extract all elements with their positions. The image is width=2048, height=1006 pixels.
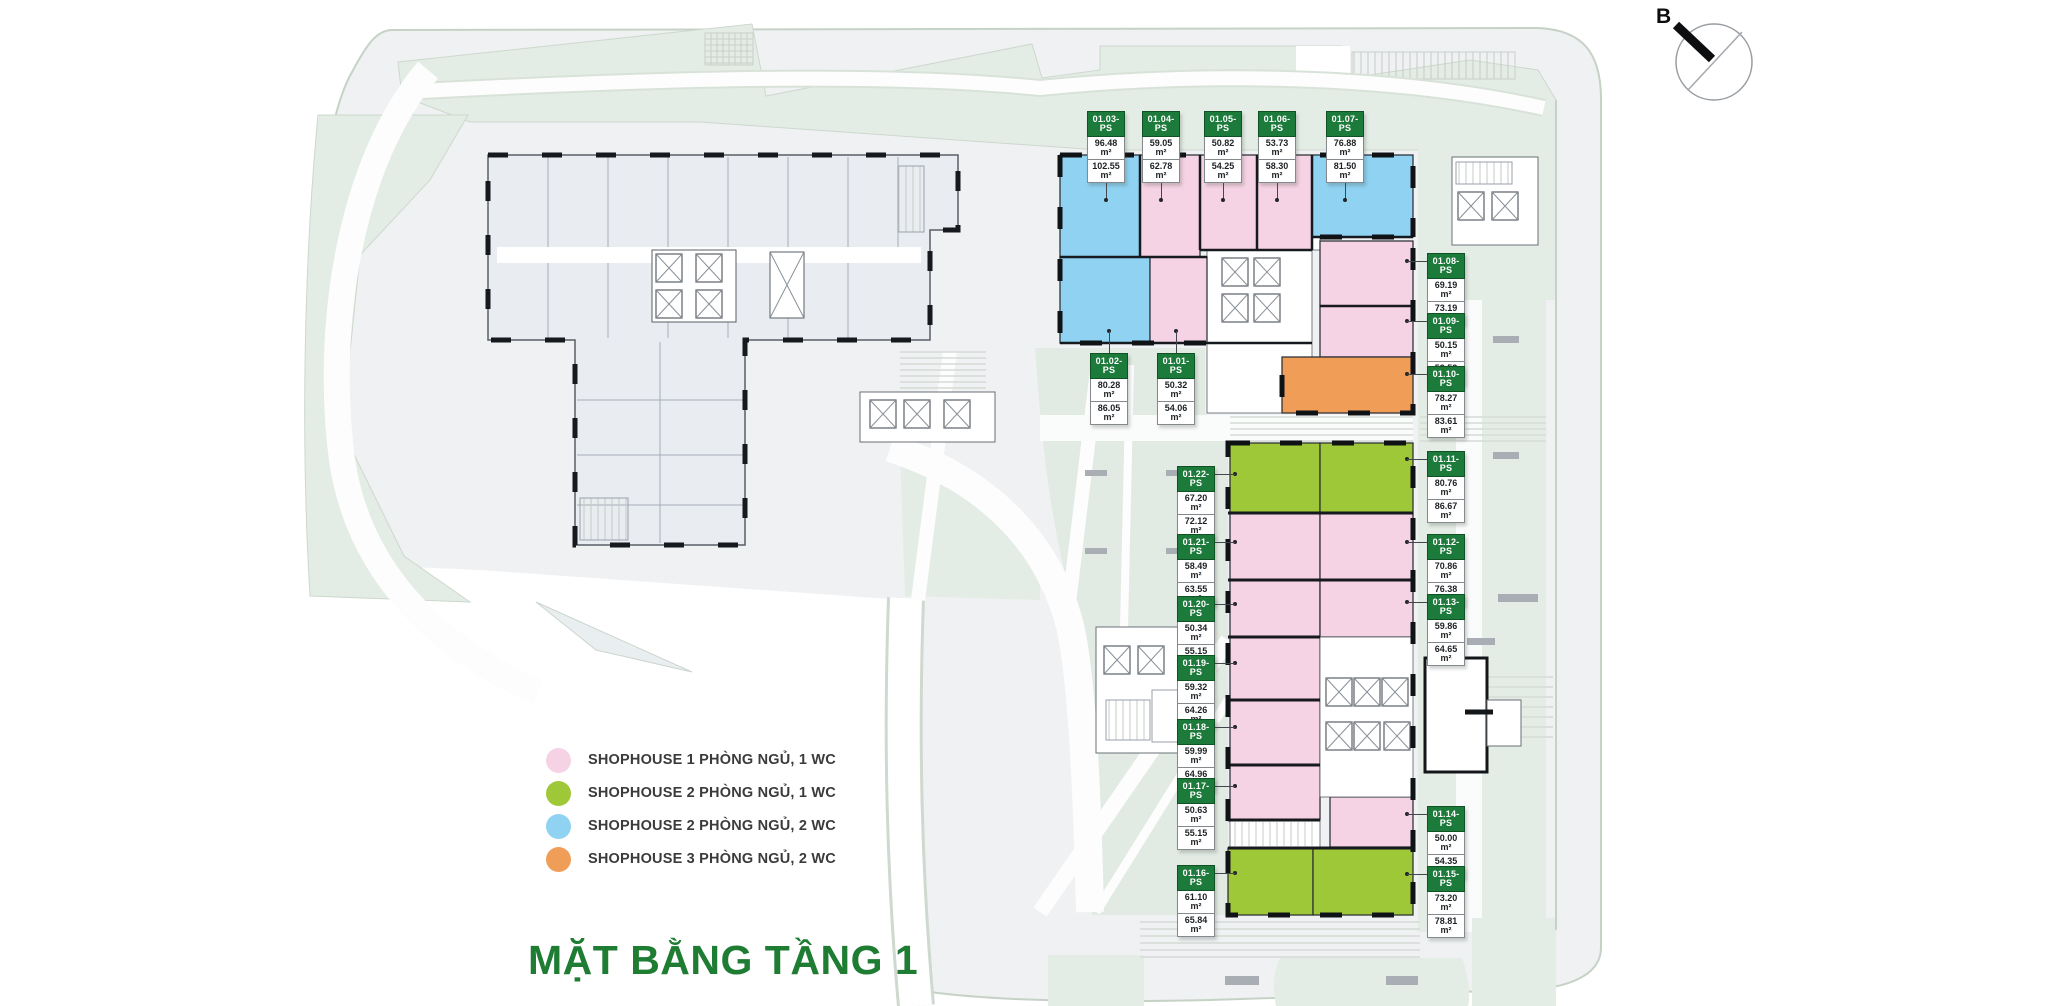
unit-01.13-ps[interactable] bbox=[1320, 580, 1413, 637]
legend-label: SHOPHOUSE 2 PHÒNG NGỦ, 2 WC bbox=[588, 819, 836, 834]
unit-01.12-ps[interactable] bbox=[1320, 513, 1413, 580]
unit-01.09-ps[interactable] bbox=[1320, 306, 1413, 357]
floor-plan-page: 01.03-PS 96.48 m² 102.55 m² 01.04-PS 59.… bbox=[0, 0, 2048, 1006]
legend-label: SHOPHOUSE 2 PHÒNG NGỦ, 1 WC bbox=[588, 786, 836, 801]
legend-dot-green bbox=[546, 781, 571, 806]
unit-label-01.03: 01.03-PS 96.48 m² 102.55 m² bbox=[1087, 111, 1125, 183]
unit-id: 01.03-PS bbox=[1087, 111, 1125, 137]
unit-01.18-ps[interactable] bbox=[1230, 700, 1320, 765]
legend-label: SHOPHOUSE 1 PHÒNG NGỦ, 1 WC bbox=[588, 753, 836, 768]
unit-label-01.10: 01.10-PS 78.27 m² 83.61 m² bbox=[1427, 366, 1465, 438]
unit-label-01.04: 01.04-PS 59.05 m² 62.78 m² bbox=[1142, 111, 1180, 183]
compass-north-label: B bbox=[1656, 6, 1671, 27]
legend-item-shophouse-1br-1wc: SHOPHOUSE 1 PHÒNG NGỦ, 1 WC bbox=[546, 748, 836, 773]
compass-icon bbox=[1676, 24, 1752, 100]
legend-item-shophouse-3br-2wc: SHOPHOUSE 3 PHÒNG NGỦ, 2 WC bbox=[546, 847, 836, 872]
unit-01.01-ps[interactable] bbox=[1150, 257, 1207, 343]
site-plan-drawing bbox=[0, 0, 2048, 1006]
unit-label-01.05: 01.05-PS 50.82 m² 54.25 m² bbox=[1204, 111, 1242, 183]
legend-dot-orange bbox=[546, 847, 571, 872]
unit-label-01.01: 01.01-PS 50.32 m² 54.06 m² bbox=[1157, 353, 1195, 425]
unit-01.21-ps[interactable] bbox=[1230, 513, 1320, 580]
page-title: MẶT BẰNG TẦNG 1 bbox=[528, 940, 918, 981]
unit-label-01.13: 01.13-PS 59.86 m² 64.65 m² bbox=[1427, 594, 1465, 666]
unit-01.02-ps[interactable] bbox=[1060, 257, 1150, 343]
unit-01.11-ps[interactable] bbox=[1320, 443, 1413, 513]
unit-label-01.16: 01.16-PS 61.10 m² 65.84 m² bbox=[1177, 865, 1215, 937]
unit-label-01.11: 01.11-PS 80.76 m² 86.67 m² bbox=[1427, 451, 1465, 523]
unit-area-2: 102.55 m² bbox=[1087, 160, 1125, 183]
legend-item-shophouse-2br-2wc: SHOPHOUSE 2 PHÒNG NGỦ, 2 WC bbox=[546, 814, 836, 839]
legend-label: SHOPHOUSE 3 PHÒNG NGỦ, 2 WC bbox=[588, 852, 836, 867]
unit-label-01.19: 01.19-PS 59.32 m² 64.26 m² bbox=[1177, 655, 1215, 727]
legend: SHOPHOUSE 1 PHÒNG NGỦ, 1 WC SHOPHOUSE 2 … bbox=[546, 748, 836, 872]
unit-01.10-ps[interactable] bbox=[1282, 357, 1413, 413]
unit-label-01.22: 01.22-PS 67.20 m² 72.12 m² bbox=[1177, 466, 1215, 538]
unit-01.17-ps[interactable] bbox=[1230, 765, 1320, 820]
unit-01.19-ps[interactable] bbox=[1230, 637, 1320, 700]
unit-label-01.07: 01.07-PS 76.88 m² 81.50 m² bbox=[1326, 111, 1364, 183]
unit-01.16-ps[interactable] bbox=[1228, 848, 1313, 915]
unit-01.20-ps[interactable] bbox=[1230, 580, 1320, 637]
legend-dot-pink bbox=[546, 748, 571, 773]
unit-01.14-ps[interactable] bbox=[1330, 797, 1413, 847]
unit-label-01.15: 01.15-PS 73.20 m² 78.81 m² bbox=[1427, 866, 1465, 938]
legend-dot-blue bbox=[546, 814, 571, 839]
unit-label-01.02: 01.02-PS 80.28 m² 86.05 m² bbox=[1090, 353, 1128, 425]
unit-label-01.17: 01.17-PS 50.63 m² 55.15 m² bbox=[1177, 778, 1215, 850]
legend-item-shophouse-2br-1wc: SHOPHOUSE 2 PHÒNG NGỦ, 1 WC bbox=[546, 781, 836, 806]
unit-01.22-ps[interactable] bbox=[1230, 443, 1320, 513]
unit-label-01.06: 01.06-PS 53.73 m² 58.30 m² bbox=[1258, 111, 1296, 183]
unit-01.15-ps[interactable] bbox=[1313, 848, 1413, 915]
unit-01.08-ps[interactable] bbox=[1320, 241, 1413, 306]
unit-area-1: 96.48 m² bbox=[1087, 137, 1125, 160]
